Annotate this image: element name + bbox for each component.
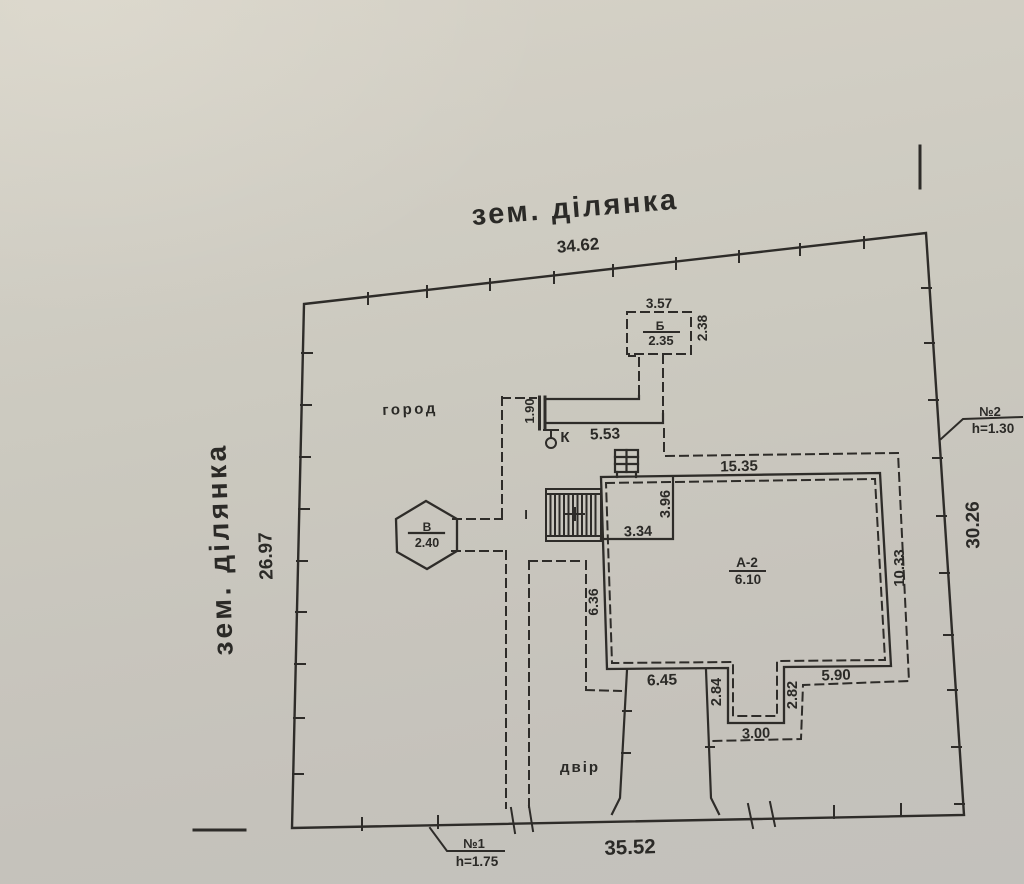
svg-text:5.90: 5.90: [821, 666, 851, 684]
svg-text:город: город: [382, 400, 438, 419]
svg-text:6.45: 6.45: [647, 671, 678, 689]
svg-text:1.90: 1.90: [522, 398, 537, 423]
svg-text:2.40: 2.40: [415, 536, 439, 550]
svg-text:К: К: [560, 429, 570, 446]
svg-text:h=1.30: h=1.30: [972, 421, 1014, 436]
svg-text:15.35: 15.35: [720, 458, 758, 476]
svg-text:I: I: [524, 507, 528, 522]
svg-text:3.34: 3.34: [624, 524, 653, 541]
svg-text:зем. ділянка: зем. ділянка: [470, 184, 679, 232]
svg-text:В: В: [423, 520, 432, 534]
svg-text:3.00: 3.00: [742, 726, 771, 743]
svg-text:30.26: 30.26: [963, 501, 985, 549]
svg-text:Б: Б: [656, 319, 665, 333]
svg-text:h=1.75: h=1.75: [456, 854, 499, 869]
svg-text:2.84: 2.84: [709, 678, 725, 706]
svg-text:№2: №2: [979, 404, 1001, 419]
svg-text:2.38: 2.38: [695, 314, 710, 341]
svg-text:зем. ділянка: зем. ділянка: [200, 442, 238, 656]
svg-text:3.96: 3.96: [658, 490, 674, 518]
svg-text:№1: №1: [463, 836, 485, 851]
svg-text:6.36: 6.36: [585, 588, 601, 615]
svg-text:2.35: 2.35: [648, 333, 673, 348]
svg-text:26.97: 26.97: [255, 532, 277, 580]
svg-text:34.62: 34.62: [556, 234, 600, 257]
svg-text:5.53: 5.53: [590, 425, 621, 443]
svg-text:3.57: 3.57: [646, 296, 672, 311]
svg-text:6.10: 6.10: [735, 572, 761, 587]
svg-text:А-2: А-2: [736, 555, 758, 570]
svg-text:10.33: 10.33: [891, 549, 908, 587]
svg-text:35.52: 35.52: [604, 835, 656, 860]
svg-text:2.82: 2.82: [785, 681, 801, 709]
svg-text:двір: двір: [560, 759, 600, 776]
